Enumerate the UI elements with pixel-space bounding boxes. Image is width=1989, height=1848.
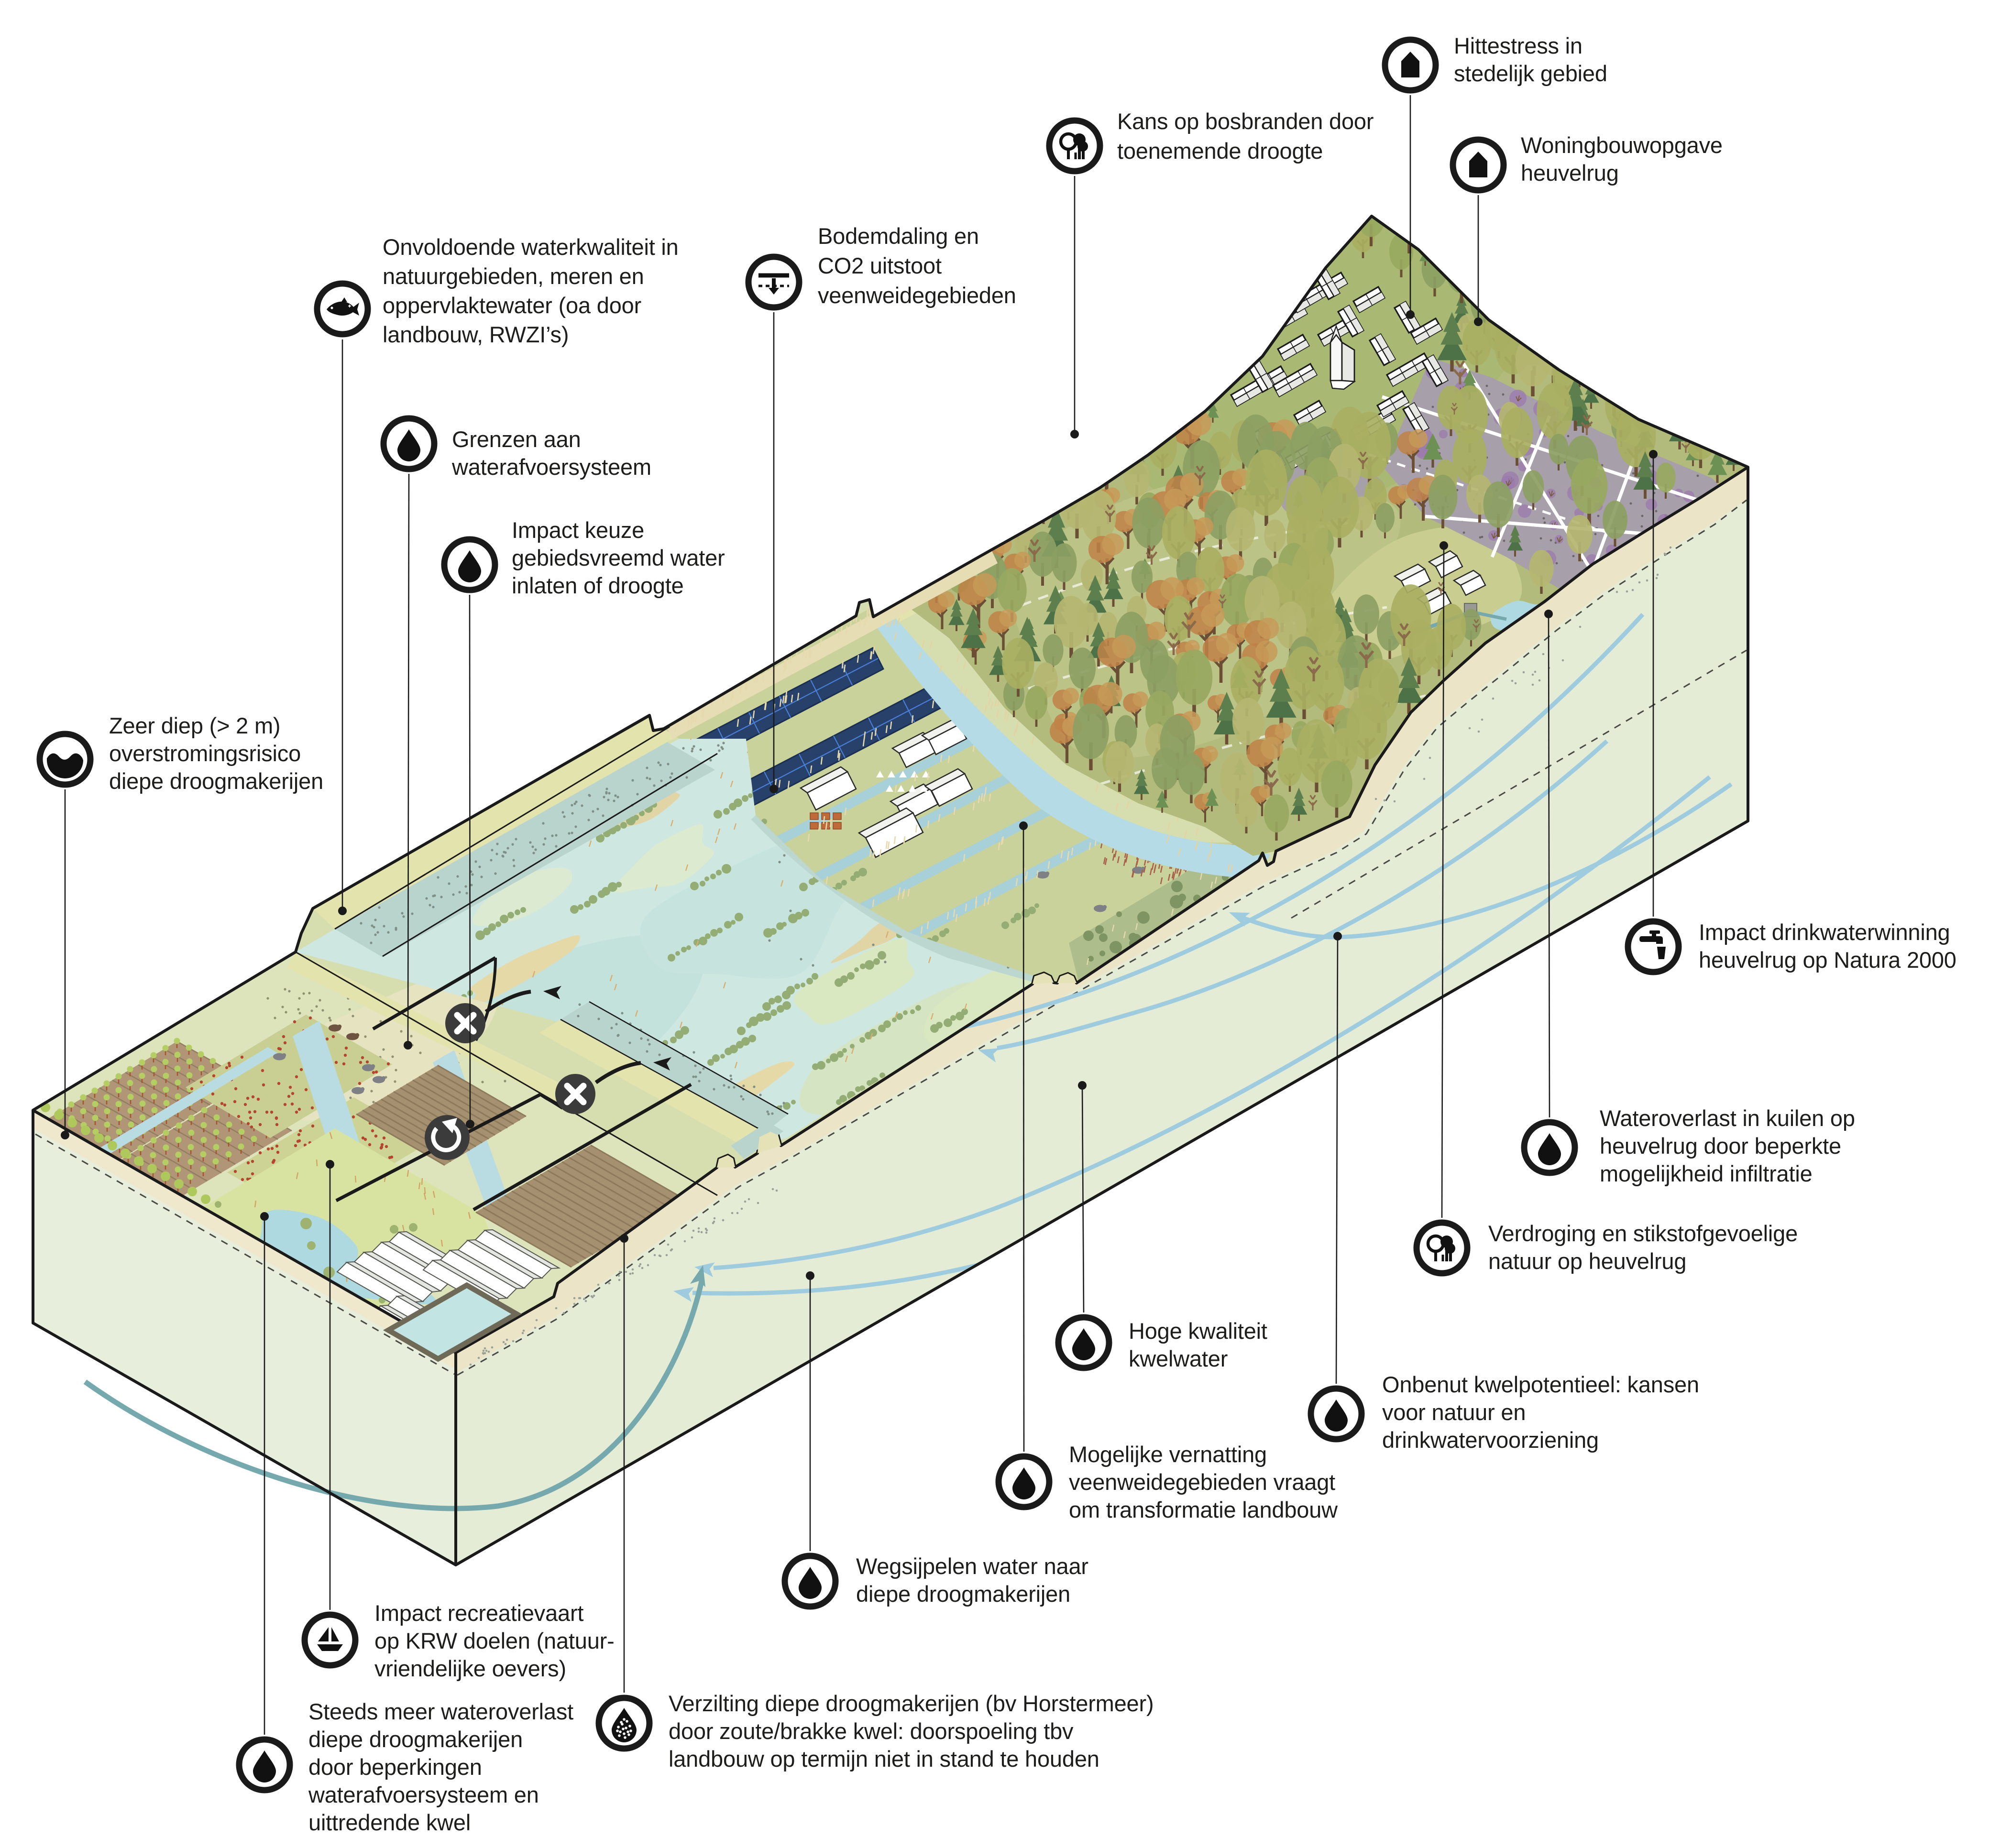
svg-text:Kans op bosbranden door: Kans op bosbranden door bbox=[1117, 109, 1374, 134]
svg-text:heuvelrug: heuvelrug bbox=[1521, 160, 1619, 186]
svg-text:natuur op heuvelrug: natuur op heuvelrug bbox=[1488, 1248, 1686, 1274]
svg-text:voor natuur en: voor natuur en bbox=[1382, 1400, 1526, 1425]
svg-text:Bodemdaling en: Bodemdaling en bbox=[818, 223, 979, 249]
svg-text:Hoge kwaliteit: Hoge kwaliteit bbox=[1129, 1318, 1267, 1344]
svg-text:Verdroging en stikstofgevoelig: Verdroging en stikstofgevoelige bbox=[1488, 1221, 1798, 1246]
svg-text:diepe droogmakerijen: diepe droogmakerijen bbox=[856, 1581, 1070, 1607]
svg-text:mogelijkheid infiltratie: mogelijkheid infiltratie bbox=[1600, 1161, 1813, 1186]
svg-text:gebiedsvreemd water: gebiedsvreemd water bbox=[512, 545, 725, 570]
svg-text:Grenzen aan: Grenzen aan bbox=[452, 426, 581, 452]
svg-text:natuurgebieden, meren en: natuurgebieden, meren en bbox=[383, 263, 644, 289]
svg-text:drinkwatervoorziening: drinkwatervoorziening bbox=[1382, 1427, 1599, 1453]
svg-text:Woningbouwopgave: Woningbouwopgave bbox=[1521, 132, 1723, 158]
svg-text:Onvoldoende waterkwaliteit in: Onvoldoende waterkwaliteit in bbox=[383, 234, 679, 260]
svg-text:inlaten of droogte: inlaten of droogte bbox=[512, 573, 684, 598]
svg-text:Impact drinkwaterwinning: Impact drinkwaterwinning bbox=[1699, 919, 1950, 945]
svg-text:Mogelijke vernatting: Mogelijke vernatting bbox=[1069, 1442, 1267, 1467]
svg-text:veenweidegebieden vraagt: veenweidegebieden vraagt bbox=[1069, 1469, 1335, 1495]
svg-text:vriendelijke oevers): vriendelijke oevers) bbox=[374, 1656, 566, 1681]
svg-text:Hittestress in: Hittestress in bbox=[1454, 33, 1582, 58]
svg-text:waterafvoersysteem: waterafvoersysteem bbox=[451, 454, 651, 480]
svg-text:oppervlaktewater (oa door: oppervlaktewater (oa door bbox=[383, 293, 641, 318]
svg-text:landbouw op termijn niet in st: landbouw op termijn niet in stand te hou… bbox=[669, 1746, 1099, 1771]
svg-text:landbouw, RWZI’s): landbouw, RWZI’s) bbox=[383, 322, 569, 347]
svg-text:Impact recreatievaart: Impact recreatievaart bbox=[374, 1600, 583, 1626]
svg-text:diepe droogmakerijen: diepe droogmakerijen bbox=[308, 1727, 523, 1752]
svg-text:Impact keuze: Impact keuze bbox=[512, 517, 644, 543]
svg-text:overstromingsrisico: overstromingsrisico bbox=[109, 741, 301, 766]
svg-text:om transformatie landbouw: om transformatie landbouw bbox=[1069, 1497, 1338, 1522]
svg-text:Onbenut kwelpotentieel: kansen: Onbenut kwelpotentieel: kansen bbox=[1382, 1372, 1699, 1397]
svg-text:Wegsijpelen water naar: Wegsijpelen water naar bbox=[856, 1553, 1088, 1579]
svg-text:stedelijk gebied: stedelijk gebied bbox=[1454, 61, 1607, 86]
svg-text:uittredende kwel: uittredende kwel bbox=[308, 1810, 471, 1835]
svg-text:kwelwater: kwelwater bbox=[1129, 1346, 1228, 1371]
svg-text:Verzilting diepe droogmakerije: Verzilting diepe droogmakerijen (bv Hors… bbox=[669, 1691, 1154, 1716]
svg-text:waterafvoersysteem en: waterafvoersysteem en bbox=[308, 1782, 539, 1807]
svg-text:heuvelrug door beperkte: heuvelrug door beperkte bbox=[1600, 1133, 1841, 1159]
svg-text:Steeds meer wateroverlast: Steeds meer wateroverlast bbox=[308, 1699, 573, 1724]
svg-text:door zoute/brakke kwel: doorsp: door zoute/brakke kwel: doorspoeling tbv bbox=[669, 1718, 1074, 1744]
svg-text:op KRW doelen (natuur-: op KRW doelen (natuur- bbox=[374, 1628, 615, 1653]
svg-text:Wateroverlast in kuilen op: Wateroverlast in kuilen op bbox=[1600, 1105, 1855, 1131]
svg-text:Zeer diep (> 2 m): Zeer diep (> 2 m) bbox=[109, 713, 280, 738]
svg-text:CO2 uitstoot: CO2 uitstoot bbox=[818, 253, 942, 278]
svg-text:veenweidegebieden: veenweidegebieden bbox=[818, 283, 1016, 308]
svg-text:door beperkingen: door beperkingen bbox=[308, 1754, 482, 1780]
svg-text:diepe droogmakerijen: diepe droogmakerijen bbox=[109, 768, 323, 794]
svg-text:heuvelrug op Natura 2000: heuvelrug op Natura 2000 bbox=[1699, 947, 1956, 973]
svg-text:toenemende droogte: toenemende droogte bbox=[1117, 138, 1323, 164]
